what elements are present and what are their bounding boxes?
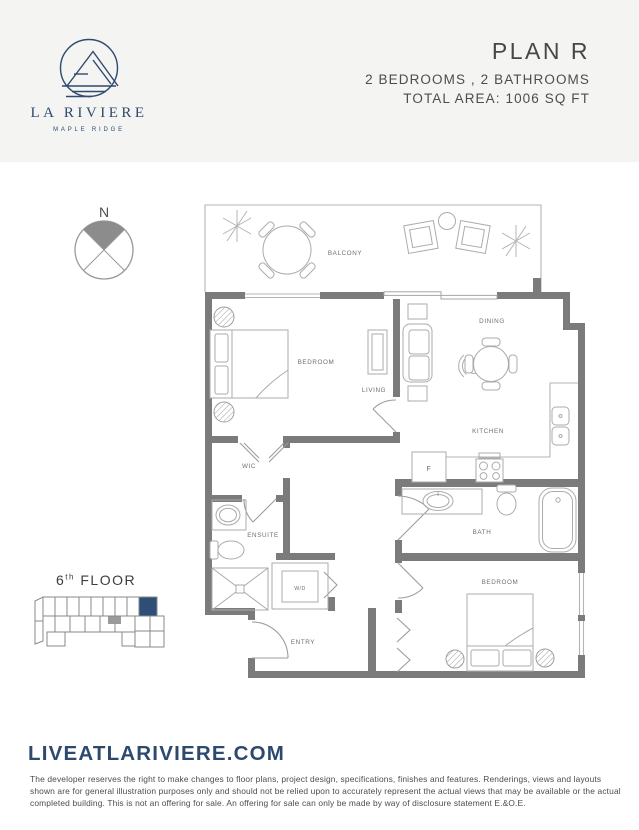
plan-area: TOTAL AREA: 1006 SQ FT xyxy=(365,91,590,106)
nightstand xyxy=(536,649,554,667)
balcony-label: BALCONY xyxy=(328,250,362,257)
floor-key-title: 6th FLOOR xyxy=(56,572,136,588)
wic-double-doors xyxy=(240,443,288,462)
closet-bifold-doors xyxy=(397,618,410,672)
bath-label: BATH xyxy=(473,529,492,536)
balcony-lounge-chairs xyxy=(404,213,490,254)
laundry-label: W/D xyxy=(294,586,306,592)
balcony-outline xyxy=(205,205,541,292)
brand-name: LA RIVIERE xyxy=(30,105,147,121)
ensuite-vanity xyxy=(212,500,246,530)
laundry-door xyxy=(324,572,337,598)
side-table xyxy=(408,386,427,401)
ensuite-toilet xyxy=(210,541,218,559)
plan-title: PLAN R xyxy=(365,38,590,65)
compass: N xyxy=(60,195,150,290)
nightstand xyxy=(214,402,234,422)
sliding-door-panel xyxy=(441,295,497,299)
nightstand xyxy=(446,650,464,668)
bed xyxy=(467,594,533,671)
floor-number: 6 xyxy=(56,572,65,588)
dining-table xyxy=(474,347,509,382)
floor-key-plan xyxy=(30,592,180,654)
disclaimer-text: The developer reserves the right to make… xyxy=(30,774,624,810)
living-furniture xyxy=(403,304,482,401)
balcony-plant-icon xyxy=(223,210,251,242)
balcony-table-set xyxy=(258,221,317,280)
entry-label: ENTRY xyxy=(291,639,315,646)
brand-tagline: MAPLE RIDGE xyxy=(53,127,125,133)
bedroom2-furniture xyxy=(446,594,554,671)
sofa xyxy=(403,324,432,382)
dining-label: DINING xyxy=(479,318,505,325)
website-link[interactable]: LIVEATLARIVIERE.COM xyxy=(28,742,285,766)
compass-north-label: N xyxy=(99,204,109,220)
highlighted-unit xyxy=(139,597,157,616)
key-gray-unit xyxy=(108,616,121,624)
balcony-plant-icon xyxy=(502,225,530,257)
kitchen-label: KITCHEN xyxy=(472,428,504,435)
side-table xyxy=(408,304,427,319)
kitchen-sink xyxy=(552,407,569,425)
bath-fixtures xyxy=(402,485,576,552)
nightstand xyxy=(214,307,234,327)
floor-plan: BALCONY BEDROOM LIVING DINING KITCHEN WI… xyxy=(195,195,595,685)
bedroom2-label: BEDROOM xyxy=(482,579,519,586)
mountain-river-logo-icon xyxy=(61,40,119,97)
fridge-label: F xyxy=(427,466,432,473)
bed xyxy=(210,330,288,398)
plan-specs: 2 BEDROOMS , 2 BATHROOMS xyxy=(365,72,590,87)
floor-ordinal: th xyxy=(65,572,75,581)
sliding-door-panel xyxy=(384,292,441,296)
ensuite-label: ENSUITE xyxy=(247,532,279,539)
wic-label: WIC xyxy=(242,463,256,470)
living-label: LIVING xyxy=(362,387,386,394)
floor-word: FLOOR xyxy=(80,572,136,588)
plan-header: PLAN R 2 BEDROOMS , 2 BATHROOMS TOTAL AR… xyxy=(365,38,590,106)
kitchen-sink xyxy=(552,427,569,445)
dining-furniture xyxy=(465,338,517,390)
bedroom1-label: BEDROOM xyxy=(298,359,335,366)
dresser xyxy=(368,330,387,374)
bath-toilet xyxy=(497,485,516,492)
brand-logo: LA RIVIERE MAPLE RIDGE xyxy=(25,28,155,138)
